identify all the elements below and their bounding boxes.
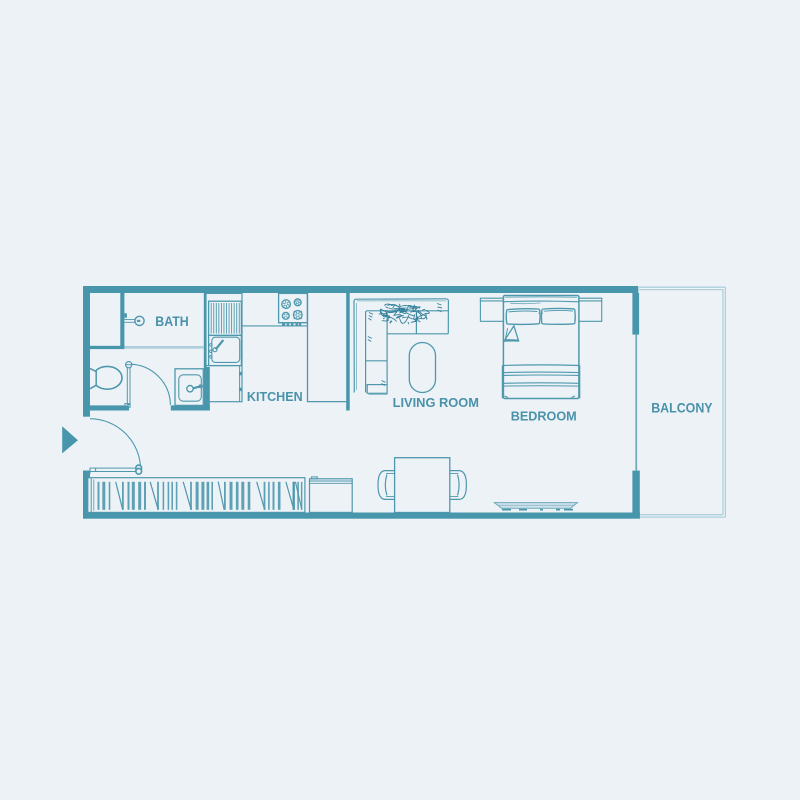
svg-text:BALCONY: BALCONY xyxy=(651,401,712,416)
svg-text:BEDROOM: BEDROOM xyxy=(511,409,577,424)
svg-text:BATH: BATH xyxy=(155,314,188,329)
svg-text:KITCHEN: KITCHEN xyxy=(247,389,303,404)
svg-text:LIVING ROOM: LIVING ROOM xyxy=(393,395,479,410)
